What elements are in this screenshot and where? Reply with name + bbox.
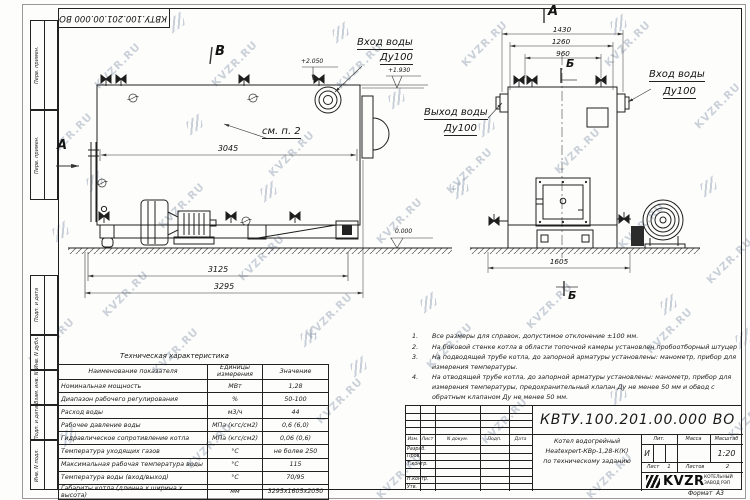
spec-cell: Температура уходящих газов [59, 445, 208, 458]
drawing-sheet: KVZR.RUKVZR.RUKVZR.RUKVZR.RUKVZR.RUKVZR.… [0, 0, 750, 500]
spec-cell: МПа (кгс/см2) [208, 432, 263, 445]
kvzr-logo-text: KVZR [663, 474, 705, 489]
format-value: А3 [716, 490, 724, 497]
tb-sheet-label: Лист [643, 462, 663, 472]
elevation-1930: +1.930 [388, 67, 410, 74]
tb-scale-header: Масштаб [710, 434, 743, 444]
spec-cell: Габариты котла (длинна х ширина х высота… [59, 484, 208, 499]
spec-table-title: Техническая характеристика [120, 352, 229, 360]
spec-cell: не более 250 [263, 445, 329, 458]
spec-cell: Диапазон рабочего регулирования [59, 393, 208, 406]
dim-1605: 1605 [550, 257, 568, 266]
spec-cell: мм [208, 484, 263, 499]
dim-3125: 3125 [208, 265, 228, 274]
spec-col-value: Значение [263, 365, 329, 380]
spec-cell: Максимальная рабочая температура воды [59, 458, 208, 471]
spec-cell: МПа (кгс/см2) [208, 419, 263, 432]
spec-cell: 0,06 (0,6) [263, 432, 329, 445]
tb-description-line1: Котел водогрейный [533, 437, 641, 447]
spec-row: Температура воды (вход/выход)°С70/95 [59, 471, 329, 484]
view-label-b: В [215, 44, 225, 59]
tb-sheets-value: 2 [720, 462, 735, 472]
spec-cell: Температура воды (вход/выход) [59, 471, 208, 484]
front-outlet-dn: Ду100 [444, 123, 477, 136]
dim-1260: 1260 [552, 37, 570, 46]
note-item: 3.На подводящей трубе котла, до запорной… [408, 353, 740, 372]
tb-col-data: Дата [509, 435, 532, 444]
tb-description-line2: Heatexpert-КВр-1,28-К(К) [533, 447, 641, 457]
front-outlet-label: Выход воды [424, 107, 488, 120]
spec-row: Номинальная мощностьМВт1,28 [59, 380, 329, 393]
elevation-zero: 0.000 [395, 228, 412, 235]
title-block: Изм. Лист N докум. Подп. Дата Разраб. Пр… [405, 405, 742, 490]
tb-scale-value: 1:20 [710, 444, 743, 462]
side-inlet-label: Вход воды [357, 37, 413, 50]
tb-mass-header: Масса [677, 434, 710, 444]
spec-row: Расход водым3/ч44 [59, 406, 329, 419]
tb-lit-value: И [641, 444, 653, 462]
spec-header-row: Наименование показателя Единицы измерени… [59, 365, 329, 380]
note-item: 2.На боковой стенке котла в области топо… [408, 343, 740, 353]
front-inlet-dn: Ду100 [663, 86, 696, 99]
spec-table-body: Номинальная мощностьМВт1,28Диапазон рабо… [59, 380, 329, 500]
tb-col-ndoc: N докум. [435, 435, 480, 444]
spec-cell: 115 [263, 458, 329, 471]
section-label-b-top: Б [566, 57, 574, 70]
tb-row-tkontr: Т.контр. [407, 460, 437, 468]
spec-cell: °С [208, 445, 263, 458]
spec-cell: Номинальная мощность [59, 380, 208, 393]
spec-cell: °С [208, 458, 263, 471]
note-item: 1.Все размеры для справок, допустимое от… [408, 332, 740, 342]
tb-sheet-value: 1 [663, 462, 675, 472]
spec-cell: 0,6 (6,0) [263, 419, 329, 432]
tb-col-podp: Подп. [480, 435, 509, 444]
kvzr-company-line2: ЗАВОД РЭП [704, 481, 733, 487]
spec-col-name: Наименование показателя [59, 365, 208, 380]
elevation-2050: +2.050 [301, 58, 323, 65]
spec-row: Максимальная рабочая температура воды°С1… [59, 458, 329, 471]
spec-cell: МВт [208, 380, 263, 393]
tb-sheets-label: Листов [680, 462, 710, 472]
spec-cell: 44 [263, 406, 329, 419]
dim-960: 960 [556, 49, 570, 58]
spec-row: Температура уходящих газов°Сне более 250 [59, 445, 329, 458]
tb-row-prov: Пров. [407, 453, 437, 460]
spec-cell: °С [208, 471, 263, 484]
callout-see-p2: см. п. 2 [262, 126, 301, 139]
spec-row: Диапазон рабочего регулирования%50-100 [59, 393, 329, 406]
spec-table: Наименование показателя Единицы измерени… [58, 364, 329, 500]
tb-row-nkontr: Н.контр. [407, 476, 437, 483]
spec-cell: 50-100 [263, 393, 329, 406]
spec-cell: м3/ч [208, 406, 263, 419]
tb-col-izm: Изм. [406, 435, 420, 444]
tb-description-line3: по техническому заданию [533, 457, 641, 467]
spec-cell: Расход воды [59, 406, 208, 419]
spec-cell: % [208, 393, 263, 406]
section-arrow-label-a: А [57, 138, 67, 153]
spec-row: Габариты котла (длинна х ширина х высота… [59, 484, 329, 499]
tb-description: Котел водогрейный Heatexpert-КВр-1,28-К(… [533, 437, 641, 466]
kvzr-company-line1: КОТЕЛЬНЫЙ [704, 475, 733, 481]
tb-col-list: Лист [420, 435, 435, 444]
spec-cell: 1,28 [263, 380, 329, 393]
tb-doc-number: КВТУ.100.201.00.000 ВО [532, 406, 743, 434]
spec-col-units: Единицы измерения [208, 365, 263, 380]
notes-list: 1.Все размеры для справок, допустимое от… [408, 332, 740, 403]
kvzr-company-name: КОТЕЛЬНЫЙ ЗАВОД РЭП [704, 475, 733, 486]
note-item: 4.На отводящей трубе котла, до запорной … [408, 373, 740, 402]
spec-cell: 3295х1605х2050 [263, 484, 329, 499]
spec-cell: Гидравлическое сопротивление котла [59, 432, 208, 445]
view-label-a: А [548, 4, 558, 19]
spec-row: Рабочее давление водыМПа (кгс/см2)0,6 (6… [59, 419, 329, 432]
kvzr-logo-icon [646, 475, 660, 488]
dim-1430: 1430 [553, 25, 571, 34]
tb-lit-header: Лит. [641, 434, 677, 444]
spec-row: Гидравлическое сопротивление котлаМПа (к… [59, 432, 329, 445]
format-label: Формат [688, 490, 712, 497]
side-inlet-dn: Ду100 [380, 52, 413, 65]
spec-cell: 70/95 [263, 471, 329, 484]
section-label-b-bottom: Б [568, 289, 576, 302]
front-inlet-label: Вход воды [649, 69, 705, 82]
spec-cell: Рабочее давление воды [59, 419, 208, 432]
tb-row-utv: Утв. [407, 483, 437, 491]
dim-3045: 3045 [218, 144, 238, 153]
dim-3295: 3295 [214, 282, 234, 291]
tb-row-razrab: Разраб. [407, 445, 437, 453]
